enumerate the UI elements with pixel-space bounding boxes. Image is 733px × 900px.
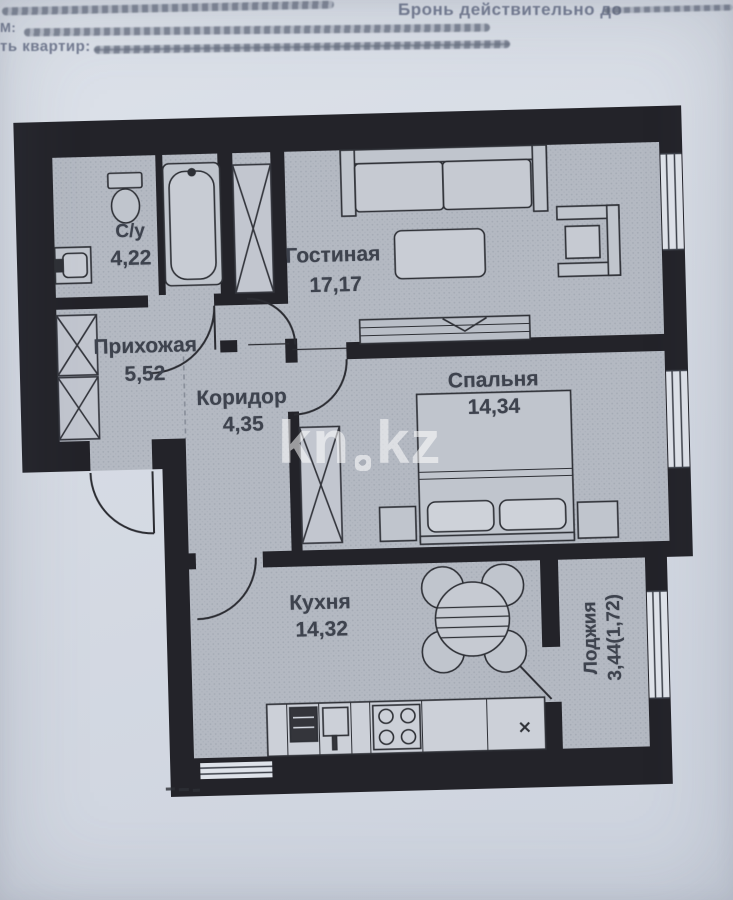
room-label-loggia: Лоджия 3,44(1,72) bbox=[578, 594, 628, 682]
living-room-window bbox=[660, 153, 684, 250]
floorplan-photo: М: ть квартир: Бронь действительно до bbox=[0, 0, 733, 900]
watermark-kz: kz bbox=[376, 408, 441, 477]
loggia-window bbox=[647, 591, 670, 698]
left-label-m: М: bbox=[0, 20, 16, 35]
kitchen-counter-icon bbox=[267, 697, 546, 756]
redacted-handwriting-line2 bbox=[24, 24, 490, 37]
kitchen-window bbox=[200, 761, 272, 779]
room-area-bedroom: 14,34 bbox=[467, 395, 520, 420]
room-area-kitchen: 14,32 bbox=[295, 617, 348, 642]
fridge-icon bbox=[290, 707, 318, 742]
reservation-note: Бронь действительно до bbox=[398, 0, 622, 20]
room-area-living: 17,17 bbox=[309, 273, 362, 298]
room-label-corridor: Коридор bbox=[196, 385, 287, 411]
room-label-living: Гостиная bbox=[285, 242, 381, 268]
nightstand-right bbox=[577, 501, 618, 538]
stove-icon bbox=[373, 704, 421, 749]
redacted-handwriting-line3 bbox=[94, 40, 510, 54]
loggia-area: 3,44(1,72) bbox=[602, 594, 628, 681]
bathtub-icon bbox=[162, 162, 222, 285]
watermark-kn: kn bbox=[278, 408, 350, 477]
sink-icon bbox=[55, 247, 92, 284]
tv-stand-icon bbox=[360, 315, 531, 343]
redacted-handwriting-right bbox=[604, 4, 733, 13]
loggia-name: Лоджия bbox=[578, 594, 604, 681]
sofa-icon bbox=[340, 145, 548, 216]
bedroom-window bbox=[666, 370, 690, 468]
armchair-icon bbox=[557, 205, 621, 277]
left-label-kvartir: ть квартир: bbox=[0, 38, 91, 55]
nightstand-left bbox=[380, 506, 417, 541]
hall-wardrobe-top bbox=[56, 315, 98, 376]
room-area-bathroom: 4,22 bbox=[110, 246, 151, 271]
room-label-hallway: Прихожая bbox=[93, 333, 197, 360]
knkz-watermark: kn kz bbox=[278, 408, 441, 477]
room-area-hallway: 5,52 bbox=[124, 362, 165, 387]
room-label-kitchen: Кухня bbox=[289, 590, 351, 616]
room-label-bathroom: С/у bbox=[115, 219, 145, 244]
coffee-table-icon bbox=[394, 229, 485, 279]
entrance-door bbox=[91, 471, 155, 535]
knkz-dot-icon bbox=[355, 455, 371, 471]
room-area-corridor: 4,35 bbox=[223, 412, 264, 437]
room-label-bedroom: Спальня bbox=[448, 367, 539, 393]
vent-shaft bbox=[233, 164, 274, 293]
redacted-handwriting-line1 bbox=[2, 1, 334, 16]
hall-wardrobe-bottom bbox=[58, 377, 100, 440]
